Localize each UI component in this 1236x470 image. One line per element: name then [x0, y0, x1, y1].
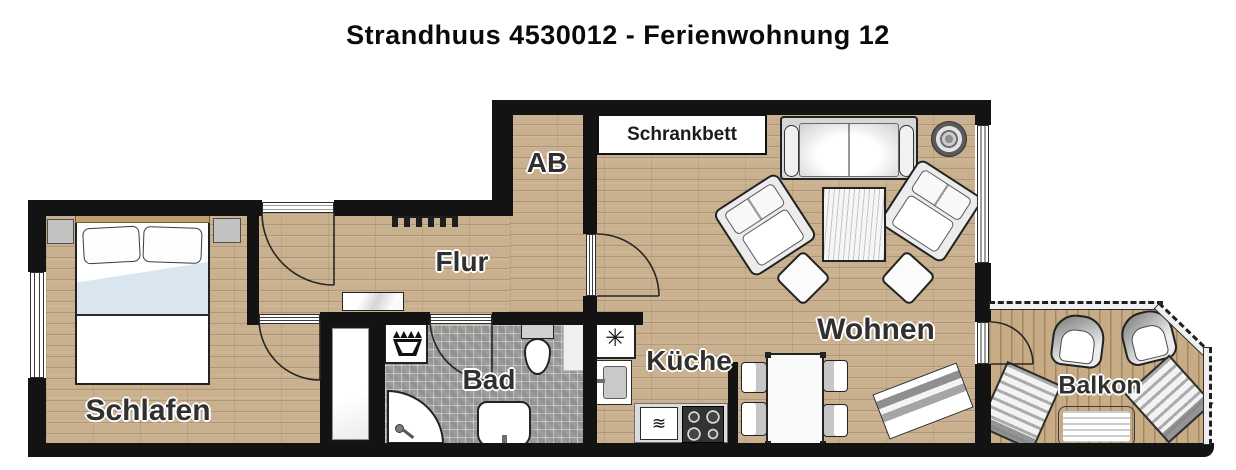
wall — [370, 312, 385, 443]
wall — [975, 100, 991, 125]
sofa-seat — [799, 123, 899, 177]
blanket-icon — [77, 262, 208, 316]
double-bed-icon — [75, 214, 210, 385]
wall — [583, 296, 597, 443]
wall — [492, 312, 643, 325]
sofa-armrest — [784, 125, 799, 177]
room-label-flur: Flur — [436, 246, 489, 278]
dining-chair-icon — [741, 362, 767, 393]
balcony-chair-seat — [1058, 328, 1096, 365]
wall — [492, 101, 513, 216]
window-livingroom — [977, 125, 989, 263]
pillow-icon — [82, 226, 141, 265]
dining-chair-icon — [823, 404, 848, 437]
coffee-table-icon — [822, 187, 886, 262]
pillow-icon — [142, 226, 202, 264]
room-label-schlafen: Schlafen — [85, 394, 210, 428]
nightstand-icon — [213, 218, 241, 243]
wall — [492, 100, 991, 115]
livingroom-door-threshold — [586, 234, 596, 296]
balcony-railing — [989, 301, 1163, 310]
washing-machine-icon — [384, 322, 428, 364]
wall — [583, 115, 597, 234]
built-in-closet-icon — [332, 328, 369, 440]
bath-mat-icon — [563, 323, 585, 371]
nightstand-icon — [47, 219, 74, 244]
wall — [247, 213, 259, 325]
wall — [28, 443, 991, 457]
wall — [28, 378, 46, 457]
bathroom-sink-icon — [477, 401, 531, 448]
coat-rack-icon — [392, 216, 458, 227]
schrankbett-label: Schrankbett — [627, 124, 737, 146]
sideboard-icon — [342, 292, 404, 311]
floorplan-page: Strandhuus 4530012 - Ferienwohnung 12 ✳ … — [0, 0, 1236, 470]
toilet-tank-icon — [521, 324, 554, 339]
bedroom-door-threshold — [259, 314, 320, 324]
wall — [334, 200, 513, 216]
sofa-icon — [780, 116, 918, 180]
room-label-bad: Bad — [463, 364, 516, 396]
entry-door-threshold — [262, 202, 334, 213]
room-label-ab: AB — [527, 147, 567, 179]
window-bedroom — [30, 272, 44, 378]
balcony-table-icon — [1058, 406, 1135, 447]
room-label-wohnen: Wohnen — [817, 313, 935, 347]
balcony-railing — [1203, 347, 1212, 445]
bathroom-door-threshold — [430, 314, 492, 324]
wall — [28, 200, 46, 272]
washtub-symbol — [393, 339, 422, 356]
faucet-icon — [597, 379, 605, 383]
wall — [320, 312, 331, 443]
wall — [975, 263, 991, 322]
schrankbett-box: Schrankbett — [597, 114, 767, 155]
page-title: Strandhuus 4530012 - Ferienwohnung 12 — [0, 20, 1236, 51]
dining-table-icon — [766, 353, 824, 445]
room-label-kueche: Küche — [646, 345, 732, 377]
room-label-balkon: Balkon — [1058, 372, 1141, 401]
dining-chair-icon — [741, 402, 767, 436]
kitchen-sink-icon — [595, 360, 632, 405]
dining-chair-icon — [823, 360, 848, 392]
microwave-icon: ≋ — [640, 407, 678, 440]
washtub-zigzag — [393, 331, 422, 338]
sink-basin — [603, 366, 627, 399]
stove-icon — [682, 406, 724, 443]
round-side-table-icon — [931, 121, 967, 157]
wall — [989, 443, 1214, 457]
balcony-chair-seat — [1129, 322, 1170, 362]
balcony-door-threshold — [977, 322, 989, 364]
wall — [28, 200, 262, 216]
